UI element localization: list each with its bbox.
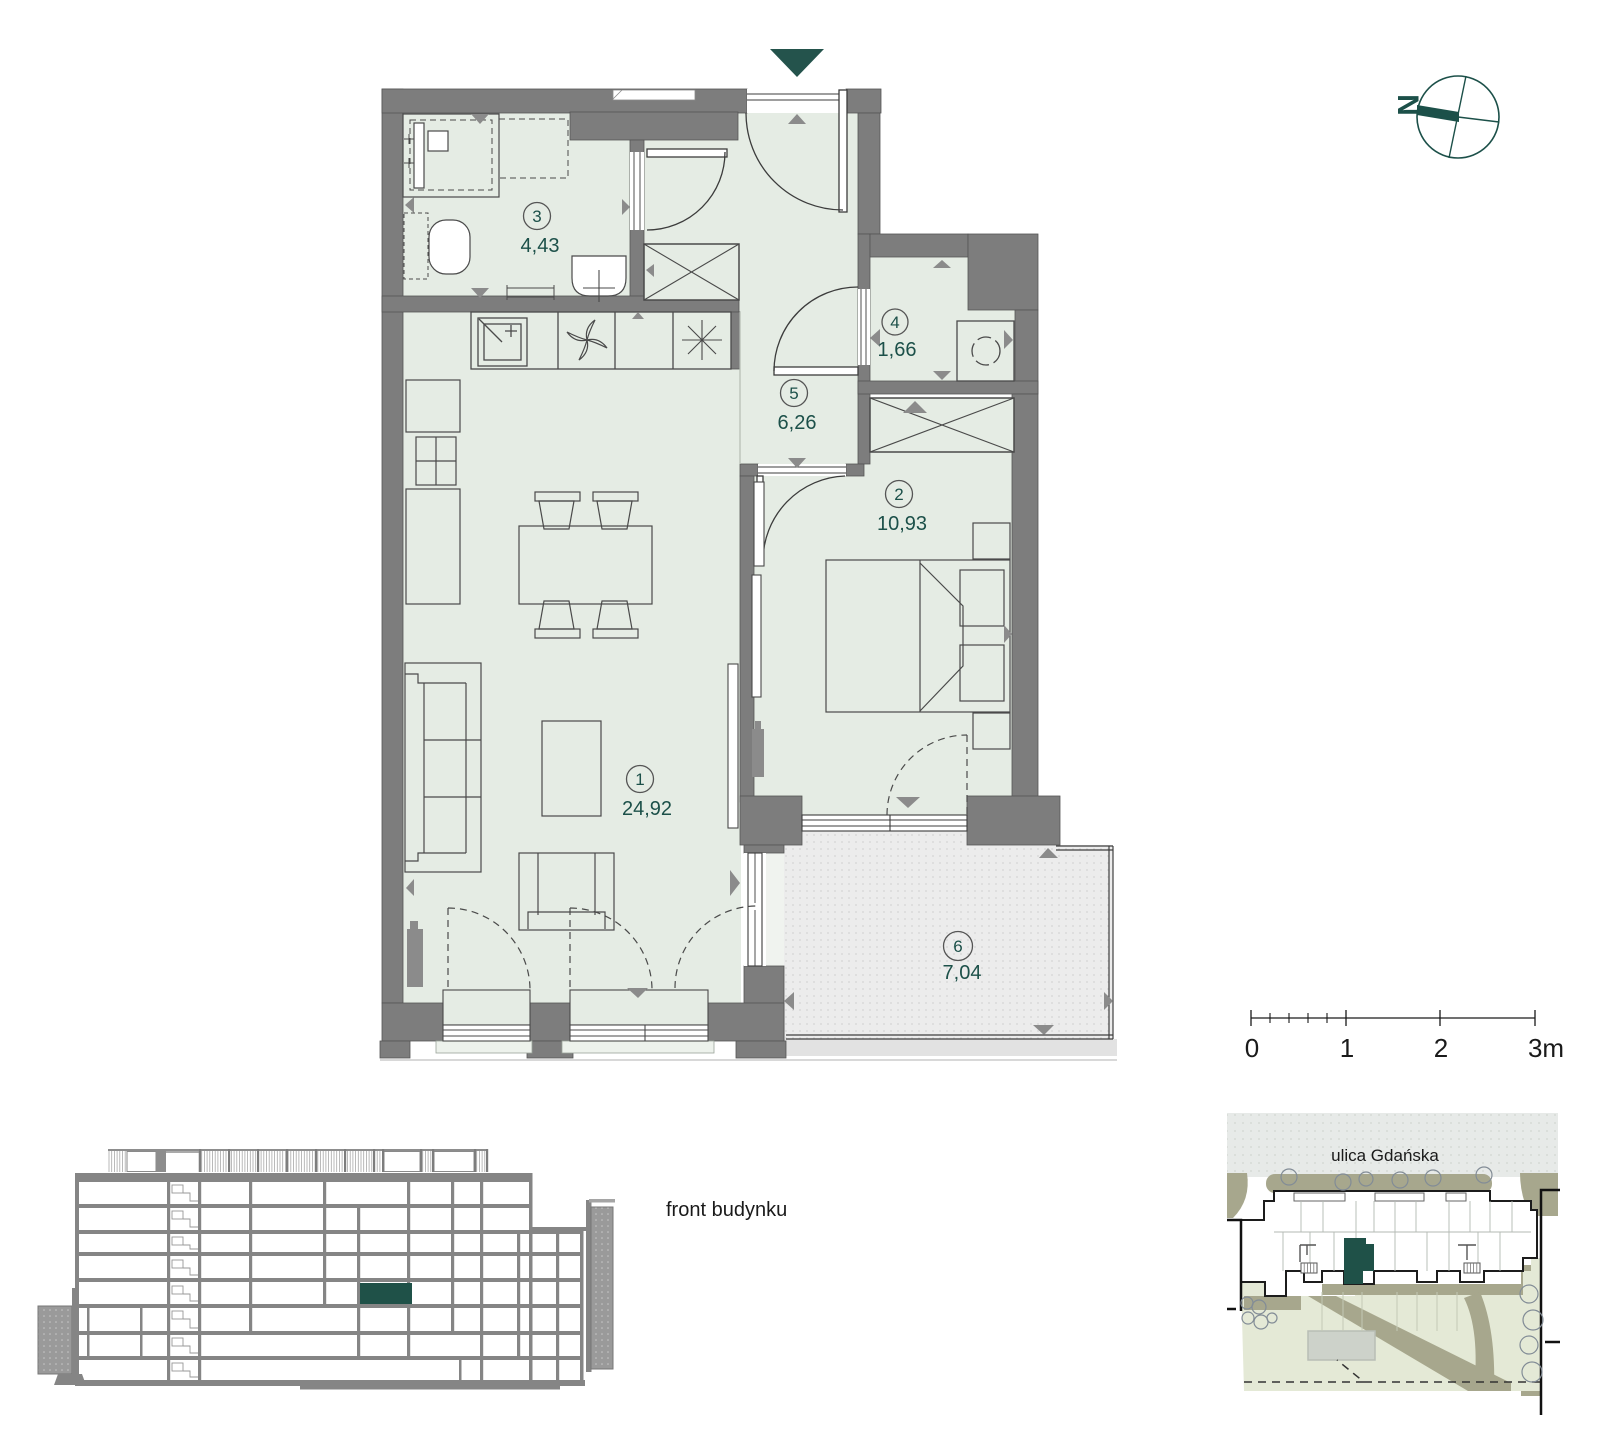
svg-text:10,93: 10,93 bbox=[877, 513, 927, 535]
svg-text:2: 2 bbox=[894, 485, 903, 504]
svg-text:24,92: 24,92 bbox=[622, 798, 672, 820]
svg-text:6,26: 6,26 bbox=[778, 412, 817, 434]
svg-text:7,04: 7,04 bbox=[943, 962, 982, 984]
svg-text:1: 1 bbox=[635, 770, 644, 789]
svg-text:0: 0 bbox=[1245, 1033, 1259, 1063]
svg-text:3m: 3m bbox=[1528, 1033, 1564, 1063]
svg-text:6: 6 bbox=[953, 937, 962, 956]
svg-text:ulica Gdańska: ulica Gdańska bbox=[1331, 1146, 1439, 1165]
svg-text:N: N bbox=[1391, 94, 1424, 116]
svg-text:1: 1 bbox=[1340, 1033, 1354, 1063]
svg-text:2: 2 bbox=[1434, 1033, 1448, 1063]
svg-text:3: 3 bbox=[532, 207, 541, 226]
svg-text:5: 5 bbox=[789, 384, 798, 403]
svg-text:1,66: 1,66 bbox=[878, 339, 917, 361]
svg-text:4: 4 bbox=[890, 313, 899, 332]
svg-text:4,43: 4,43 bbox=[521, 235, 560, 257]
svg-text:front budynku: front budynku bbox=[666, 1199, 787, 1221]
